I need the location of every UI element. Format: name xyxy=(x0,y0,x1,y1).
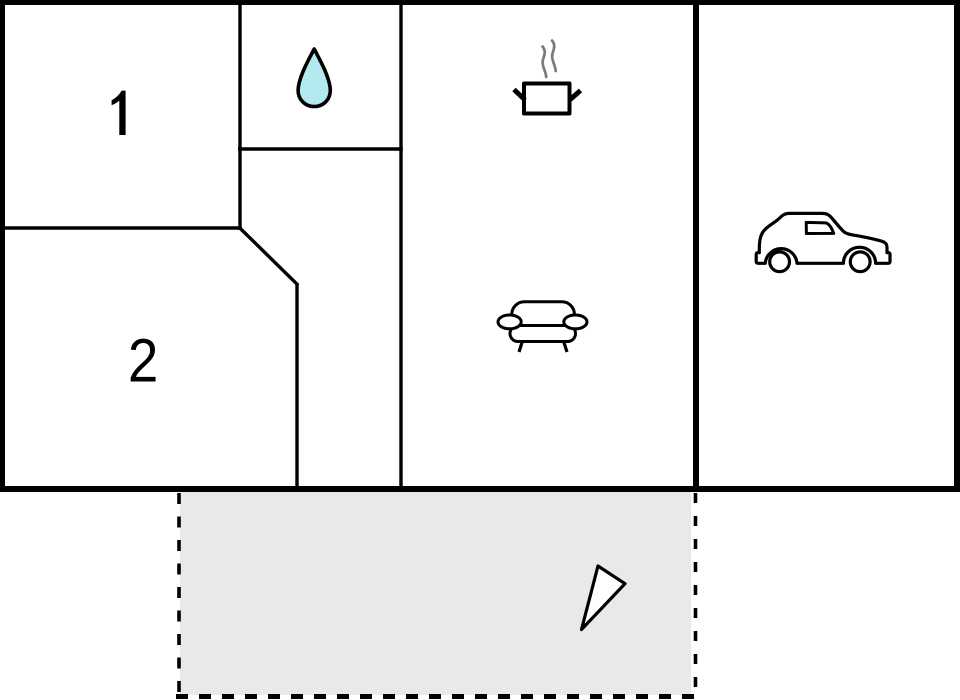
svg-text:2: 2 xyxy=(128,327,158,396)
